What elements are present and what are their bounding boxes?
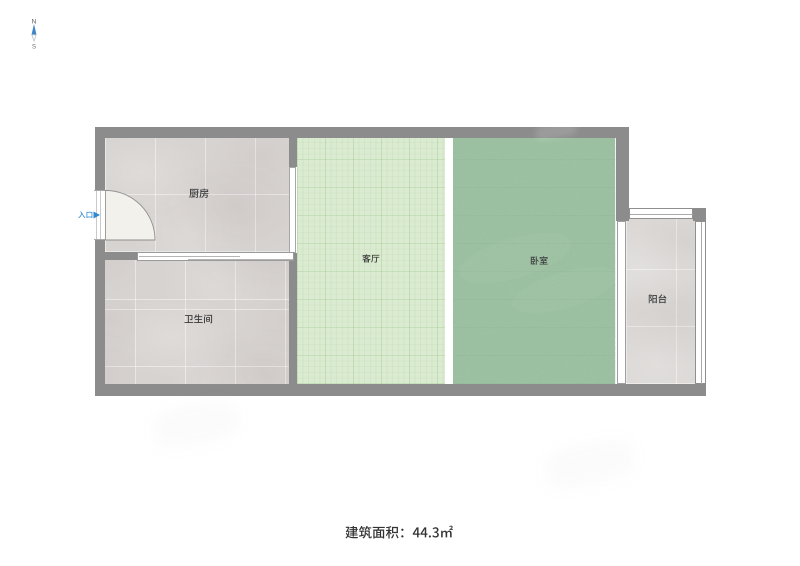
svg-text:S: S [32, 45, 36, 51]
svg-text:N: N [32, 19, 37, 26]
